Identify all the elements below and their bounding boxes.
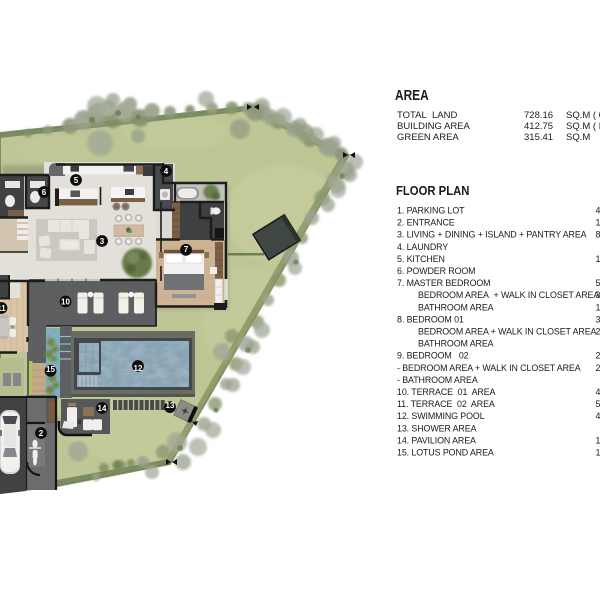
svg-text:16.00: 16.00 <box>596 254 600 264</box>
svg-text:45.00: 45.00 <box>596 387 600 397</box>
svg-text:14.00: 14.00 <box>596 435 600 445</box>
svg-text:412.75: 412.75 <box>524 121 553 132</box>
svg-text:TOTAL LAND: TOTAL LAND <box>397 110 457 121</box>
svg-text:4. LAUNDRY: 4. LAUNDRY <box>397 242 448 252</box>
svg-text:11: 11 <box>0 304 6 313</box>
svg-text:3: 3 <box>100 237 105 246</box>
svg-text:2. ENTRANCE: 2. ENTRANCE <box>397 218 455 228</box>
svg-text:- BATHROOM AREA: - BATHROOM AREA <box>397 375 478 385</box>
svg-text:SQ.M ( 0.46 RAI ): SQ.M ( 0.46 RAI ) <box>566 110 600 121</box>
svg-text:7: 7 <box>184 245 189 254</box>
svg-text:BEDROOM AREA + WALK IN CLOSET: BEDROOM AREA + WALK IN CLOSET AREA <box>418 290 599 300</box>
svg-text:1. PARKING LOT: 1. PARKING LOT <box>397 206 465 216</box>
svg-text:9. BEDROOM 02: 9. BEDROOM 02 <box>397 351 469 361</box>
svg-text:12: 12 <box>134 364 143 373</box>
svg-text:15: 15 <box>46 365 55 374</box>
svg-text:48.00: 48.00 <box>596 411 600 421</box>
svg-text:52.00: 52.00 <box>596 278 600 288</box>
svg-text:52.00: 52.00 <box>596 399 600 409</box>
svg-text:10. TERRACE 01 AREA: 10. TERRACE 01 AREA <box>397 387 496 397</box>
svg-text:728.16: 728.16 <box>524 110 553 121</box>
svg-text:2: 2 <box>39 429 44 438</box>
svg-text:- BEDROOM AREA + WALK IN CLOSE: - BEDROOM AREA + WALK IN CLOSET AREA <box>397 363 581 373</box>
svg-text:6. POWDER ROOM: 6. POWDER ROOM <box>397 266 475 276</box>
svg-text:12. SWIMMING POOL: 12. SWIMMING POOL <box>397 411 485 421</box>
svg-text:BATHROOM AREA: BATHROOM AREA <box>418 302 494 312</box>
svg-text:4: 4 <box>164 167 169 176</box>
svg-text:24.00: 24.00 <box>596 363 600 373</box>
svg-text:6: 6 <box>42 188 47 197</box>
svg-text:7. MASTER BEDROOM: 7. MASTER BEDROOM <box>397 278 490 288</box>
svg-text:BATHROOM AREA: BATHROOM AREA <box>418 339 494 349</box>
svg-text:26.00: 26.00 <box>596 327 600 337</box>
svg-text:17.00: 17.00 <box>596 302 600 312</box>
svg-text:38.00: 38.00 <box>596 314 600 324</box>
svg-text:12.00: 12.00 <box>596 218 600 228</box>
svg-text:FLOOR PLAN: FLOOR PLAN <box>396 183 469 198</box>
svg-text:3. LIVING + DINING + ISLAND +: 3. LIVING + DINING + ISLAND + PANTRY ARE… <box>397 230 587 240</box>
svg-text:11. TERRACE 02 AREA: 11. TERRACE 02 AREA <box>397 399 495 409</box>
svg-text:5. KITCHEN: 5. KITCHEN <box>397 254 445 264</box>
svg-text:13: 13 <box>166 401 175 410</box>
svg-text:15. LOTUS POND AREA: 15. LOTUS POND AREA <box>397 448 494 458</box>
svg-text:28.00: 28.00 <box>596 351 600 361</box>
svg-text:14. PAVILION AREA: 14. PAVILION AREA <box>397 435 476 445</box>
svg-text:5: 5 <box>74 176 79 185</box>
svg-text:12.00: 12.00 <box>596 448 600 458</box>
svg-text:BEDROOM AREA + WALK IN CLOSET: BEDROOM AREA + WALK IN CLOSET AREA <box>418 327 597 337</box>
svg-text:BUILDING AREA: BUILDING AREA <box>397 121 471 132</box>
svg-text:45.50: 45.50 <box>596 206 600 216</box>
svg-text:8. BEDROOM 01: 8. BEDROOM 01 <box>397 314 464 324</box>
svg-text:315.41: 315.41 <box>524 132 553 143</box>
svg-text:SQ.M ( NET ): SQ.M ( NET ) <box>566 121 600 132</box>
svg-text:14: 14 <box>98 404 107 413</box>
svg-text:13. SHOWER AREA: 13. SHOWER AREA <box>397 423 477 433</box>
svg-text:10: 10 <box>61 298 70 307</box>
svg-text:AREA: AREA <box>395 87 429 103</box>
svg-text:GREEN AREA: GREEN AREA <box>397 132 459 143</box>
svg-text:35.00: 35.00 <box>596 290 600 300</box>
svg-text:86.30: 86.30 <box>596 230 600 240</box>
svg-text:SQ.M: SQ.M <box>566 132 590 143</box>
